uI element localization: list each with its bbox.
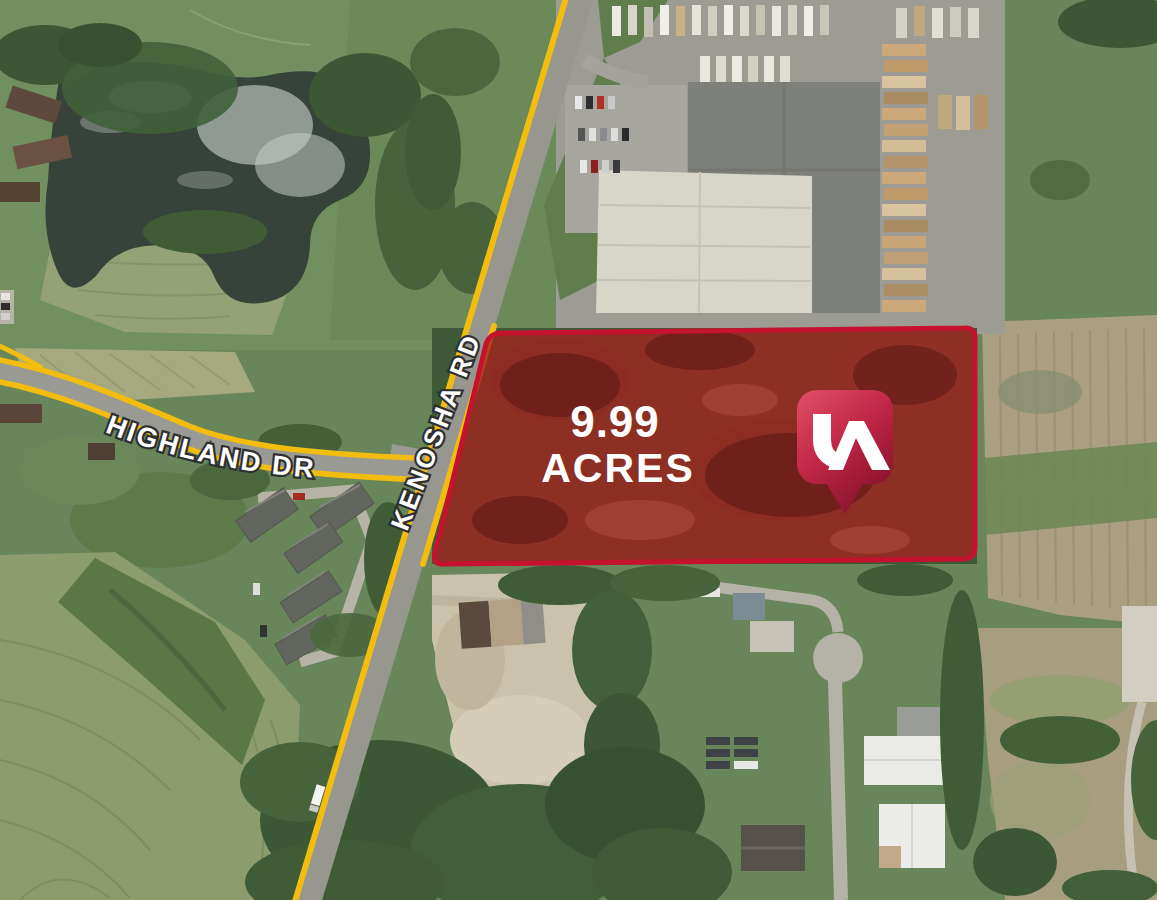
parcel-overlay [434,328,975,564]
acreage-value: 9.99 [570,397,660,446]
metal-building [733,593,765,620]
gravel-lot-building [459,597,546,649]
aerial-listing-map: HIGHLAND DR KENOSHA RD 9.99 ACRES [0,0,1157,900]
white-roof-building-b [879,804,945,868]
metal-building [750,621,794,652]
satellite-map: HIGHLAND DR KENOSHA RD 9.99 ACRES [0,0,1157,900]
industrial-complex [544,0,1005,334]
warehouse-roof-light [596,170,812,313]
acreage-unit: ACRES [541,445,695,491]
small-house [88,443,115,460]
